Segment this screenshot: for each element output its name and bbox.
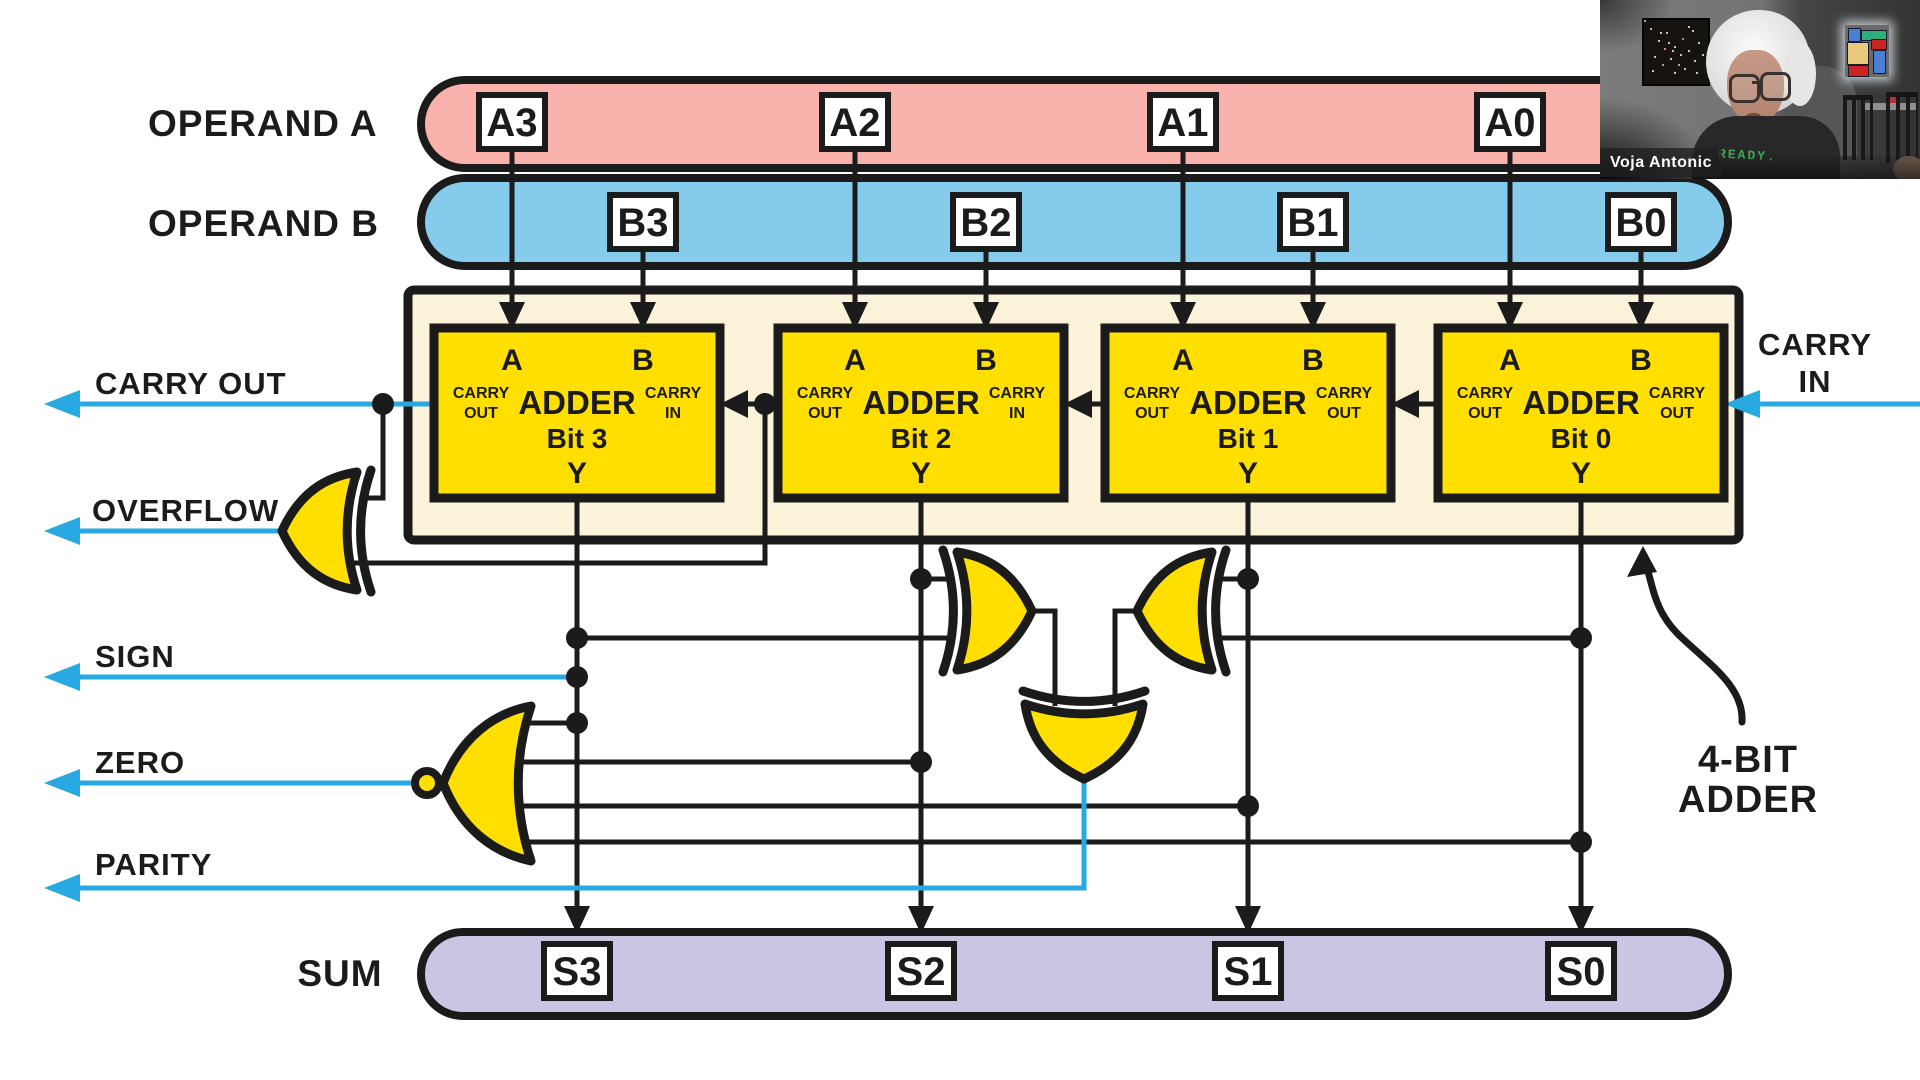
carry-in-label-line2: IN <box>1799 364 1832 399</box>
svg-text:CARRY: CARRY <box>1316 385 1373 402</box>
adder-bit3-title: ADDER <box>518 384 636 421</box>
adder-bit3-input-a: A <box>501 344 523 377</box>
adder-bit3-name: Bit 3 <box>547 423 608 454</box>
adder-bit2: A B CARRY OUT ADDER CARRY IN Bit 2 Y <box>778 328 1064 498</box>
svg-text:OUT: OUT <box>1468 405 1502 422</box>
bit-a2: A2 <box>829 101 880 145</box>
callout-line2: ADDER <box>1678 779 1818 821</box>
adder-bit0-name: Bit 0 <box>1551 423 1612 454</box>
callout-line1: 4-BIT <box>1698 739 1798 781</box>
bit-a1: A1 <box>1157 101 1208 145</box>
svg-text:A: A <box>844 344 866 377</box>
bit-b3: B3 <box>617 201 668 245</box>
bit-s3: S3 <box>553 950 602 994</box>
svg-text:A: A <box>1172 344 1194 377</box>
adder-bit3-output: Y <box>567 457 587 490</box>
parity-xor-gate-left <box>943 550 1032 672</box>
adder-bit0-title: ADDER <box>1522 384 1640 421</box>
overflow-xor-gate <box>282 470 371 592</box>
zero-gate-bubble <box>415 771 439 795</box>
svg-text:B: B <box>1302 344 1324 377</box>
glasses-icon <box>1760 72 1791 101</box>
zero-nor-gate <box>415 706 531 861</box>
glasses-icon <box>1729 74 1760 103</box>
bit-s1: S1 <box>1224 950 1273 994</box>
bit-b2: B2 <box>960 201 1011 245</box>
bit-a3: A3 <box>486 101 537 145</box>
svg-text:OUT: OUT <box>464 405 498 422</box>
operand-b-label: OPERAND B <box>148 203 379 244</box>
adder-bit3-input-b: B <box>632 344 654 377</box>
svg-text:CARRY: CARRY <box>1649 385 1706 402</box>
sign-label: SIGN <box>95 639 175 674</box>
adder-bit2-name: Bit 2 <box>891 423 952 454</box>
bit-b0: B0 <box>1615 201 1666 245</box>
parity-feed-wires <box>577 579 1581 706</box>
svg-text:OUT: OUT <box>808 405 842 422</box>
adder-bit2-title: ADDER <box>862 384 980 421</box>
sum-bar <box>421 932 1728 1016</box>
bit-s0: S0 <box>1557 950 1606 994</box>
parity-label: PARITY <box>95 847 212 882</box>
participant-name-badge: Voja Antonic <box>1600 148 1722 177</box>
svg-text:IN: IN <box>1009 405 1025 422</box>
svg-text:OUT: OUT <box>1327 405 1361 422</box>
svg-text:A: A <box>1499 344 1521 377</box>
carry-in-label-line1: CARRY <box>1758 327 1872 362</box>
svg-text:CARRY: CARRY <box>797 385 854 402</box>
adder-bit0-output: Y <box>1571 457 1591 490</box>
bit-a0: A0 <box>1484 101 1535 145</box>
svg-text:CARRY: CARRY <box>1457 385 1514 402</box>
svg-text:B: B <box>1630 344 1652 377</box>
callout-curve-arrow <box>1646 564 1742 722</box>
adder-bit1: A B CARRY OUT ADDER CARRY OUT Bit 1 Y <box>1105 328 1391 498</box>
chair-silhouette <box>1843 95 1873 160</box>
bit-b1: B1 <box>1287 201 1338 245</box>
callout-arrowhead <box>1627 546 1657 577</box>
webcam-overlay: READY. Voja Antonic <box>1600 0 1920 179</box>
svg-text:B: B <box>975 344 997 377</box>
adder-bit1-title: ADDER <box>1189 384 1307 421</box>
carry-out-label: CARRY OUT <box>95 366 287 401</box>
adder-bit1-output: Y <box>1238 457 1258 490</box>
svg-text:CARRY: CARRY <box>645 385 702 402</box>
overflow-label: OVERFLOW <box>92 493 279 528</box>
glasses-bridge <box>1752 81 1762 84</box>
operand-a-label: OPERAND A <box>148 103 378 144</box>
slide-4bit-adder-diagram: OPERAND A OPERAND B SUM <box>0 0 1920 1080</box>
svg-text:CARRY: CARRY <box>989 385 1046 402</box>
bit-s2: S2 <box>897 950 946 994</box>
adder-bit2-output: Y <box>911 457 931 490</box>
vignette <box>1600 0 1670 50</box>
parity-xor-gate-bottom <box>1023 691 1145 779</box>
svg-text:OUT: OUT <box>1660 405 1694 422</box>
svg-text:CARRY: CARRY <box>1124 385 1181 402</box>
adder-callout: 4-BIT ADDER <box>1627 546 1818 821</box>
wall-art-mondrian <box>1845 25 1889 77</box>
svg-text:CARRY: CARRY <box>453 385 510 402</box>
adder-bit1-name: Bit 1 <box>1218 423 1279 454</box>
zero-label: ZERO <box>95 745 185 780</box>
svg-text:OUT: OUT <box>1135 405 1169 422</box>
adder-bit0: A B CARRY OUT ADDER CARRY OUT Bit 0 Y <box>1438 328 1724 498</box>
svg-text:IN: IN <box>665 405 681 422</box>
parity-xor-gate-right <box>1137 550 1226 672</box>
adder-bit3: A B CARRY OUT ADDER CARRY IN Bit 3 Y <box>434 328 720 498</box>
sum-label: SUM <box>297 953 382 994</box>
